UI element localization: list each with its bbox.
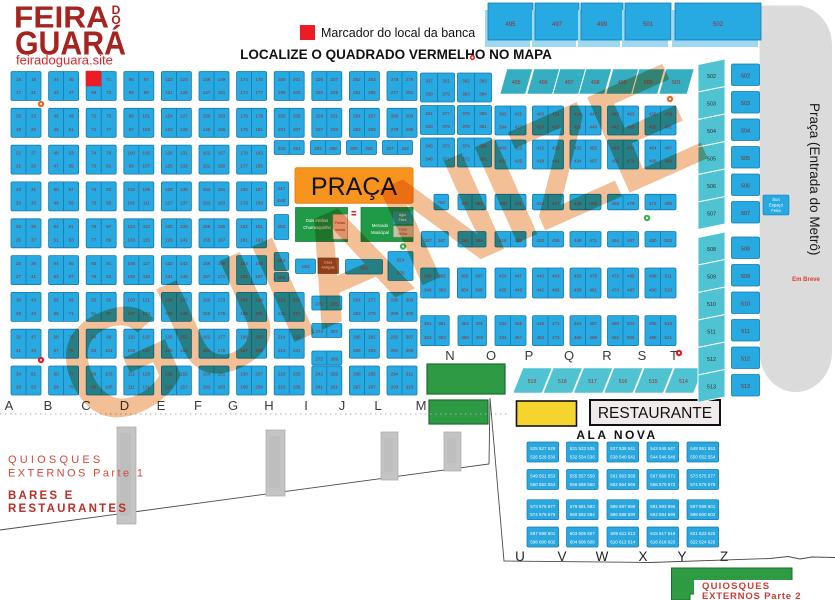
svg-text:155: 155 [218, 127, 226, 132]
svg-text:109: 109 [143, 187, 151, 192]
svg-text:53: 53 [69, 150, 75, 155]
svg-text:152: 152 [203, 150, 211, 155]
svg-text:550 552 554: 550 552 554 [690, 454, 716, 459]
svg-text:17: 17 [16, 90, 22, 95]
svg-text:283: 283 [406, 114, 414, 119]
svg-text:426: 426 [499, 287, 507, 292]
svg-text:252: 252 [353, 77, 361, 82]
svg-text:181: 181 [255, 127, 263, 132]
svg-text:517: 517 [588, 379, 597, 385]
svg-text:Z: Z [720, 549, 728, 564]
svg-text:253: 253 [368, 77, 376, 82]
svg-text:285: 285 [368, 371, 376, 376]
svg-text:503: 503 [741, 101, 750, 107]
svg-text:129: 129 [165, 237, 173, 242]
svg-text:353: 353 [438, 335, 446, 340]
svg-text:259: 259 [331, 371, 339, 376]
svg-text:502: 502 [713, 22, 724, 28]
svg-text:432: 432 [499, 321, 507, 326]
svg-text:403: 403 [476, 335, 484, 340]
svg-text:585 587 589: 585 587 589 [610, 504, 636, 509]
svg-text:74: 74 [91, 150, 97, 155]
svg-text:510: 510 [707, 302, 716, 308]
svg-text:BARES E: BARES E [8, 490, 75, 502]
svg-text:482: 482 [611, 335, 619, 340]
svg-text:463: 463 [552, 274, 560, 279]
svg-text:Espaço: Espaço [769, 203, 784, 208]
svg-text:37: 37 [31, 237, 37, 242]
svg-text:361: 361 [438, 321, 446, 326]
svg-text:107: 107 [143, 164, 151, 169]
svg-text:474: 474 [611, 287, 619, 292]
svg-text:154: 154 [203, 187, 211, 192]
svg-text:21: 21 [16, 164, 22, 169]
svg-text:277: 277 [391, 90, 399, 95]
svg-text:311: 311 [406, 371, 414, 376]
svg-text:67: 67 [69, 274, 75, 279]
svg-text:508: 508 [707, 247, 716, 253]
svg-text:98: 98 [129, 114, 135, 119]
svg-text:71: 71 [91, 127, 97, 132]
svg-text:103: 103 [128, 237, 136, 242]
svg-text:115: 115 [143, 237, 151, 242]
svg-text:514: 514 [679, 379, 688, 385]
svg-text:71: 71 [106, 77, 112, 82]
svg-text:307: 307 [406, 335, 414, 340]
svg-text:604 606 608: 604 606 608 [570, 539, 596, 544]
svg-text:502: 502 [707, 74, 716, 80]
svg-text:480: 480 [649, 238, 657, 243]
svg-text:59: 59 [54, 385, 60, 390]
svg-text:383: 383 [479, 78, 487, 83]
svg-text:148: 148 [203, 77, 211, 82]
svg-text:434: 434 [499, 335, 507, 340]
svg-text:449: 449 [514, 287, 522, 292]
svg-text:91: 91 [106, 261, 112, 266]
svg-text:U: U [515, 549, 525, 564]
svg-text:267: 267 [353, 385, 361, 390]
svg-text:179: 179 [255, 114, 263, 119]
svg-text:189: 189 [255, 201, 263, 206]
svg-text:586 588 590: 586 588 590 [610, 512, 636, 517]
svg-text:48: 48 [54, 150, 60, 155]
svg-text:RESTAURANTES: RESTAURANTES [8, 503, 128, 515]
svg-text:488: 488 [649, 274, 657, 279]
svg-text:39: 39 [31, 261, 37, 266]
svg-text:123: 123 [165, 127, 173, 132]
svg-text:34: 34 [16, 371, 22, 376]
svg-text:B: B [44, 398, 53, 413]
svg-text:519: 519 [528, 379, 537, 385]
svg-text:254: 254 [353, 114, 361, 119]
svg-text:L: L [374, 398, 381, 413]
svg-text:149: 149 [218, 77, 226, 82]
svg-text:287: 287 [368, 385, 376, 390]
svg-text:603 605 607: 603 605 607 [570, 531, 596, 536]
svg-text:21: 21 [31, 90, 37, 95]
svg-text:19: 19 [16, 127, 22, 132]
svg-text:509: 509 [741, 274, 750, 280]
svg-text:561 563 565: 561 563 565 [610, 474, 636, 479]
svg-text:497: 497 [552, 22, 563, 28]
svg-text:225: 225 [316, 90, 324, 95]
svg-text:EXTERNOS Parte 1: EXTERNOS Parte 1 [8, 468, 145, 480]
svg-text:499: 499 [597, 22, 608, 28]
svg-text:149: 149 [203, 127, 211, 132]
svg-text:293: 293 [391, 385, 399, 390]
svg-text:47: 47 [31, 335, 37, 340]
svg-text:241: 241 [316, 385, 324, 390]
svg-text:45: 45 [54, 127, 60, 132]
svg-text:A: A [5, 398, 14, 413]
svg-text:175: 175 [255, 77, 263, 82]
svg-text:502: 502 [741, 74, 750, 80]
svg-text:76: 76 [91, 187, 97, 192]
svg-text:574 576 578: 574 576 578 [690, 482, 716, 487]
svg-text:343: 343 [278, 146, 286, 151]
svg-text:573 575 577: 573 575 577 [690, 474, 716, 479]
svg-text:I: I [304, 398, 308, 413]
svg-text:185: 185 [255, 164, 263, 169]
svg-text:80: 80 [91, 261, 97, 266]
svg-text:555 557 559: 555 557 559 [570, 474, 596, 479]
svg-text:163: 163 [218, 201, 226, 206]
svg-text:450: 450 [536, 335, 544, 340]
svg-text:512: 512 [707, 357, 716, 363]
svg-text:77: 77 [106, 127, 112, 132]
svg-text:573 575 577: 573 575 577 [530, 504, 556, 509]
svg-text:549 551 553: 549 551 553 [530, 474, 556, 479]
svg-text:99: 99 [144, 90, 150, 95]
svg-text:610 612 614: 610 612 614 [610, 539, 636, 544]
svg-text:526 528 530: 526 528 530 [530, 454, 556, 459]
svg-text:133: 133 [180, 164, 188, 169]
svg-text:341: 341 [425, 111, 433, 116]
svg-text:511: 511 [665, 274, 673, 279]
svg-text:89: 89 [106, 237, 112, 242]
svg-text:268: 268 [353, 371, 361, 376]
svg-text:T: T [670, 348, 678, 363]
svg-text:153: 153 [203, 201, 211, 206]
svg-text:77: 77 [91, 237, 97, 242]
svg-text:510: 510 [741, 302, 750, 308]
svg-text:EXTERNOS Parte 2: EXTERNOS Parte 2 [702, 591, 801, 600]
svg-text:65: 65 [69, 261, 75, 266]
svg-text:466: 466 [574, 335, 582, 340]
svg-text:73: 73 [106, 90, 112, 95]
svg-text:495: 495 [512, 80, 521, 86]
svg-text:227: 227 [316, 127, 324, 132]
svg-text:511: 511 [707, 330, 716, 336]
svg-text:157: 157 [218, 150, 226, 155]
svg-text:J: J [339, 398, 346, 413]
svg-text:473: 473 [552, 335, 560, 340]
svg-text:495: 495 [627, 274, 635, 279]
svg-text:72: 72 [91, 114, 97, 119]
svg-text:51: 51 [69, 127, 75, 132]
svg-text:156: 156 [203, 224, 211, 229]
svg-text:481: 481 [589, 287, 597, 292]
svg-text:183: 183 [255, 150, 263, 155]
svg-text:123: 123 [180, 77, 188, 82]
svg-text:531 533 535: 531 533 535 [570, 446, 596, 451]
svg-text:203: 203 [293, 90, 301, 95]
svg-text:498: 498 [649, 335, 657, 340]
svg-text:259: 259 [368, 127, 376, 132]
svg-text:401: 401 [476, 321, 484, 326]
svg-text:513: 513 [707, 385, 716, 391]
svg-text:26: 26 [16, 224, 22, 229]
svg-text:309: 309 [406, 348, 414, 353]
svg-text:351: 351 [424, 321, 432, 326]
svg-text:126: 126 [165, 150, 173, 155]
svg-text:78: 78 [91, 224, 97, 229]
svg-text:456: 456 [574, 274, 582, 279]
svg-text:102: 102 [128, 187, 136, 192]
svg-text:75: 75 [106, 114, 112, 119]
svg-text:176: 176 [240, 114, 248, 119]
svg-text:101: 101 [143, 114, 151, 119]
svg-text:51: 51 [54, 237, 60, 242]
svg-text:125: 125 [165, 164, 173, 169]
svg-text:598 600 602: 598 600 602 [690, 512, 716, 517]
svg-text:538 540 542: 538 540 542 [610, 454, 636, 459]
svg-text:507: 507 [707, 212, 716, 218]
svg-text:574 576 578: 574 576 578 [530, 512, 556, 517]
svg-text:105: 105 [143, 150, 151, 155]
svg-text:279: 279 [391, 127, 399, 132]
svg-text:556 558 560: 556 558 560 [570, 482, 596, 487]
svg-text:31: 31 [31, 187, 37, 192]
svg-text:33: 33 [31, 201, 37, 206]
svg-text:RESTAURANTE: RESTAURANTE [598, 405, 712, 422]
svg-text:173: 173 [240, 90, 248, 95]
svg-text:49: 49 [31, 348, 37, 353]
svg-text:343: 343 [425, 124, 433, 129]
svg-text:104: 104 [128, 224, 136, 229]
svg-text:448: 448 [536, 321, 544, 326]
svg-text:207: 207 [293, 127, 301, 132]
svg-text:35: 35 [31, 224, 37, 229]
svg-text:Marcador do local da banca: Marcador do local da banca [321, 26, 475, 40]
svg-text:QUIOSQUES: QUIOSQUES [8, 454, 103, 466]
svg-text:360: 360 [461, 335, 469, 340]
svg-text:101: 101 [128, 201, 136, 206]
svg-text:18: 18 [16, 77, 22, 82]
svg-text:Praça (Entrada do Metrô): Praça (Entrada do Metrô) [807, 103, 822, 255]
svg-text:513: 513 [664, 287, 672, 292]
svg-text:44: 44 [54, 77, 60, 82]
svg-text:278: 278 [391, 77, 399, 82]
svg-text:103: 103 [143, 127, 151, 132]
svg-text:60: 60 [54, 371, 60, 376]
svg-text:503: 503 [627, 321, 635, 326]
svg-text:375: 375 [442, 92, 450, 97]
svg-text:279: 279 [406, 77, 414, 82]
svg-text:201: 201 [278, 127, 286, 132]
svg-text:24: 24 [16, 187, 22, 192]
svg-text:161: 161 [218, 187, 226, 192]
svg-text:179: 179 [240, 201, 248, 206]
svg-text:339: 339 [425, 92, 433, 97]
svg-text:131: 131 [180, 150, 188, 155]
svg-text:51: 51 [31, 371, 37, 376]
svg-text:504: 504 [707, 129, 716, 135]
svg-text:464: 464 [574, 321, 582, 326]
svg-text:174: 174 [240, 77, 248, 82]
svg-text:229: 229 [331, 90, 339, 95]
svg-text:Sua: Sua [772, 197, 780, 202]
svg-text:362: 362 [461, 321, 469, 326]
svg-text:543 545 547: 543 545 547 [650, 446, 676, 451]
svg-text:233: 233 [331, 127, 339, 132]
svg-text:362: 362 [462, 78, 470, 83]
svg-text:97: 97 [144, 77, 150, 82]
svg-text:49: 49 [69, 114, 75, 119]
svg-text:597 599 601: 597 599 601 [530, 531, 556, 536]
svg-text:518: 518 [558, 379, 567, 385]
svg-text:53: 53 [54, 274, 60, 279]
svg-text:497: 497 [627, 287, 635, 292]
svg-text:377: 377 [442, 111, 450, 116]
svg-text:457: 457 [514, 335, 522, 340]
svg-text:291: 291 [391, 348, 399, 353]
svg-text:544 546 548: 544 546 548 [650, 454, 676, 459]
svg-text:19: 19 [31, 77, 37, 82]
svg-text:282: 282 [314, 146, 322, 151]
svg-text:125: 125 [180, 90, 188, 95]
svg-text:509: 509 [707, 275, 716, 281]
svg-text:180: 180 [240, 187, 248, 192]
svg-text:46: 46 [54, 114, 60, 119]
svg-text:592 594 596: 592 594 596 [650, 512, 676, 517]
svg-text:215: 215 [278, 385, 286, 390]
svg-text:feiradoguara.site: feiradoguara.site [16, 53, 113, 68]
svg-text:508: 508 [741, 247, 750, 253]
svg-text:31: 31 [16, 348, 22, 353]
svg-text:95: 95 [129, 90, 135, 95]
svg-text:177: 177 [255, 90, 263, 95]
svg-text:472: 472 [611, 274, 619, 279]
svg-text:495: 495 [505, 22, 516, 28]
svg-text:79: 79 [91, 274, 97, 279]
svg-text:199: 199 [278, 90, 286, 95]
svg-text:384: 384 [479, 92, 487, 97]
svg-text:591 593 595: 591 593 595 [650, 504, 676, 509]
svg-text:487: 487 [589, 321, 597, 326]
svg-text:351: 351 [442, 78, 450, 83]
svg-text:283: 283 [368, 348, 376, 353]
svg-text:23: 23 [16, 201, 22, 206]
svg-text:150: 150 [203, 114, 211, 119]
svg-text:47: 47 [54, 164, 60, 169]
svg-text:616 618 620: 616 618 620 [650, 539, 676, 544]
svg-text:567 569 571: 567 569 571 [650, 474, 676, 479]
svg-text:151: 151 [218, 90, 226, 95]
svg-text:97: 97 [129, 127, 135, 132]
svg-text:147: 147 [203, 90, 211, 95]
svg-text:292: 292 [391, 335, 399, 340]
svg-text:P: P [525, 348, 534, 363]
svg-text:458: 458 [574, 287, 582, 292]
svg-text:N: N [445, 348, 454, 363]
svg-text:471: 471 [552, 321, 560, 326]
svg-text:280: 280 [391, 114, 399, 119]
svg-text:242: 242 [316, 371, 324, 376]
svg-text:27: 27 [16, 274, 22, 279]
svg-text:128: 128 [165, 187, 173, 192]
svg-text:550 552 554: 550 552 554 [530, 482, 556, 487]
svg-text:621 623 625: 621 623 625 [690, 531, 716, 536]
svg-text:235: 235 [293, 385, 301, 390]
svg-text:501: 501 [643, 22, 654, 28]
svg-text:Feira: Feira [771, 208, 781, 213]
svg-text:294: 294 [391, 371, 399, 376]
svg-text:59: 59 [69, 201, 75, 206]
svg-text:507: 507 [741, 211, 750, 217]
svg-text:515: 515 [649, 379, 658, 385]
svg-text:129: 129 [180, 127, 188, 132]
svg-text:440: 440 [536, 274, 544, 279]
svg-text:124: 124 [165, 114, 173, 119]
svg-text:Em Breve: Em Breve [792, 277, 820, 283]
svg-text:285: 285 [406, 127, 414, 132]
svg-text:178: 178 [240, 150, 248, 155]
svg-text:205: 205 [293, 114, 301, 119]
svg-text:532 534 536: 532 534 536 [570, 454, 596, 459]
svg-text:139: 139 [180, 224, 188, 229]
svg-text:25: 25 [16, 237, 22, 242]
svg-text:137: 137 [180, 201, 188, 206]
svg-text:99: 99 [129, 164, 135, 169]
svg-text:257: 257 [368, 114, 376, 119]
svg-text:20: 20 [16, 114, 22, 119]
svg-text:525 527 529: 525 527 529 [530, 446, 556, 451]
svg-text:63: 63 [69, 237, 75, 242]
svg-text:496: 496 [649, 321, 657, 326]
svg-text:122: 122 [165, 77, 173, 82]
svg-text:ALA NOVA: ALA NOVA [576, 428, 657, 442]
svg-text:29: 29 [16, 311, 22, 316]
svg-text:27: 27 [31, 150, 37, 155]
svg-text:28: 28 [16, 261, 22, 266]
svg-text:609 611 613: 609 611 613 [610, 531, 635, 536]
svg-text:130: 130 [165, 224, 173, 229]
svg-text:111: 111 [143, 201, 150, 206]
svg-text:200: 200 [278, 77, 286, 82]
svg-text:135: 135 [180, 187, 188, 192]
svg-text:326: 326 [365, 146, 373, 151]
svg-text:100: 100 [128, 150, 136, 155]
svg-text:549 551 553: 549 551 553 [690, 446, 716, 451]
svg-text:503: 503 [707, 102, 716, 108]
svg-text:442: 442 [536, 287, 544, 292]
svg-text:32: 32 [16, 335, 22, 340]
svg-text:506: 506 [741, 184, 750, 190]
svg-text:228: 228 [316, 114, 324, 119]
svg-text:R: R [602, 348, 611, 363]
svg-text:227: 227 [331, 77, 339, 82]
svg-text:226: 226 [316, 77, 324, 82]
svg-text:597 599 601: 597 599 601 [690, 504, 716, 509]
svg-text:43: 43 [54, 90, 60, 95]
svg-text:57: 57 [69, 187, 75, 192]
svg-text:298: 298 [329, 146, 337, 151]
svg-text:261: 261 [293, 146, 301, 151]
svg-text:61: 61 [69, 224, 75, 229]
svg-text:511: 511 [741, 329, 750, 335]
svg-text:H: H [264, 398, 273, 413]
